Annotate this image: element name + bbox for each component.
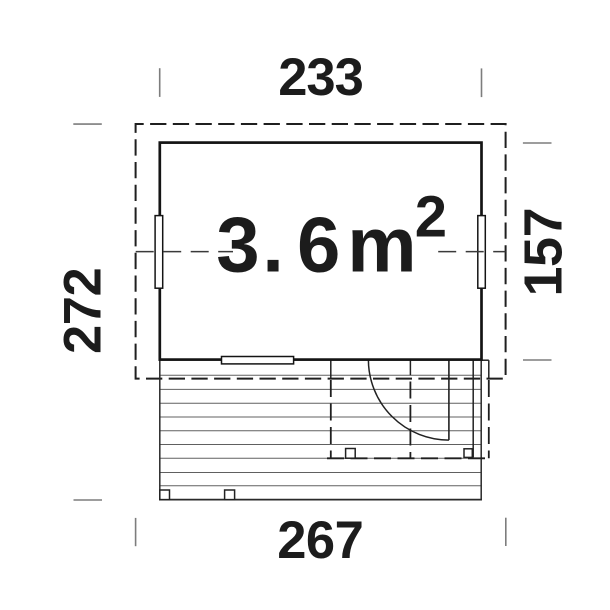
svg-text:.: . — [262, 201, 284, 289]
svg-text:3: 3 — [216, 201, 259, 289]
svg-text:272: 272 — [53, 268, 112, 354]
svg-text:2: 2 — [415, 185, 447, 250]
svg-text:6: 6 — [297, 201, 340, 289]
svg-text:m: m — [347, 201, 416, 289]
svg-text:267: 267 — [277, 511, 363, 570]
svg-text:233: 233 — [278, 48, 363, 107]
svg-text:157: 157 — [514, 208, 574, 297]
